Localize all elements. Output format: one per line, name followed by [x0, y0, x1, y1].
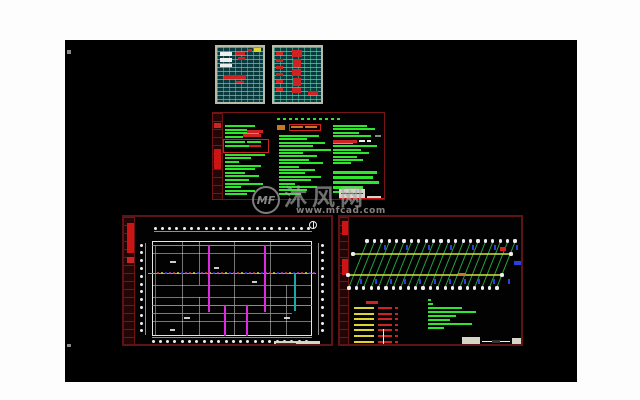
tick — [313, 118, 316, 120]
mark — [199, 241, 200, 285]
text-line — [428, 303, 433, 305]
grid-bubble — [166, 340, 169, 343]
text-line — [225, 125, 255, 127]
mark — [512, 338, 522, 344]
text-line — [428, 327, 444, 329]
panel-schedule-table-right — [272, 45, 323, 104]
mark — [127, 223, 134, 253]
grid-bubble — [205, 227, 208, 230]
grid-bubble — [321, 251, 324, 254]
tick — [283, 118, 286, 120]
legend-text — [395, 324, 398, 326]
branch-line — [364, 242, 382, 287]
legend-text — [395, 335, 398, 337]
grid-bubble — [254, 340, 257, 343]
legend-swatch — [354, 341, 374, 343]
text-line — [279, 155, 317, 157]
tick — [493, 279, 495, 284]
text-line — [279, 152, 303, 154]
mark — [252, 281, 257, 283]
grid-bubble — [321, 298, 324, 301]
mark — [305, 126, 317, 128]
legend-swatch — [354, 318, 374, 320]
grid-bubble — [476, 239, 479, 242]
mark — [220, 58, 232, 62]
text-line — [333, 125, 367, 127]
north-arrow-icon — [313, 222, 314, 229]
grid-bubble — [439, 239, 442, 242]
mark — [234, 241, 235, 336]
tick — [464, 279, 466, 284]
legend-swatch — [354, 329, 374, 331]
grid-bubble — [484, 239, 487, 242]
mark — [247, 141, 261, 143]
mark — [248, 49, 252, 52]
grid-bubble — [384, 286, 387, 289]
mark — [277, 125, 285, 130]
mark — [214, 267, 219, 269]
text-line — [333, 132, 359, 134]
grid-bubble — [161, 227, 164, 230]
mark — [333, 171, 377, 174]
grid-bubble — [300, 227, 303, 230]
grid-bubble — [410, 239, 413, 242]
grid-bubble — [488, 286, 491, 289]
mark — [293, 59, 301, 67]
mark — [238, 57, 245, 60]
grid-bubble — [395, 239, 398, 242]
grid-bubble — [421, 286, 424, 289]
watermark-site-url: www.mfcad.com — [296, 206, 386, 216]
mark — [154, 231, 312, 232]
grid-bubble — [190, 227, 193, 230]
grid-bubble — [425, 239, 428, 242]
mark — [276, 88, 283, 91]
grid-bubble — [321, 306, 324, 309]
grid-bubble — [197, 227, 200, 230]
cad-screenshot-canvas: MF 沐风网 www.mfcad.com — [0, 0, 640, 400]
grid-bubble — [321, 314, 324, 317]
grid-bubble — [321, 283, 324, 286]
legend-text — [378, 318, 392, 320]
text-line — [428, 323, 472, 325]
grid-bubble — [321, 329, 324, 332]
grid-bubble — [168, 227, 171, 230]
grid-bubble — [402, 239, 405, 242]
grid-bubble — [407, 286, 410, 289]
text-line — [225, 154, 265, 156]
text-line — [225, 172, 245, 174]
mark — [199, 297, 200, 336]
grid-bubble — [373, 239, 376, 242]
mark — [208, 245, 210, 312]
grid-bubble — [388, 239, 391, 242]
grid-bubble — [392, 286, 395, 289]
grid-bubble — [432, 239, 435, 242]
grid-bubble — [234, 227, 237, 230]
grid-bubble — [140, 298, 143, 301]
mark — [67, 344, 71, 347]
mark — [276, 73, 283, 76]
grid-bubble — [321, 244, 324, 247]
mark — [246, 305, 248, 336]
text-line — [333, 145, 377, 147]
grid-bubble — [447, 239, 450, 242]
text-line — [428, 319, 450, 321]
mark — [294, 273, 296, 311]
grid-bubble — [458, 286, 461, 289]
mark — [359, 140, 365, 142]
legend-text — [378, 313, 392, 315]
mark — [247, 130, 263, 133]
grid-bubble — [285, 227, 288, 230]
grid-bubble — [140, 314, 143, 317]
node-dot — [500, 273, 503, 276]
branch-line — [438, 242, 456, 287]
text-line — [225, 165, 261, 167]
legend-text — [378, 341, 392, 343]
grid-bubble — [241, 227, 244, 230]
tick — [428, 245, 430, 250]
mark — [292, 88, 301, 93]
branch-line — [349, 242, 367, 287]
text-line — [225, 161, 239, 163]
node-dot — [509, 252, 512, 255]
legend-text — [395, 329, 398, 331]
tick — [307, 118, 310, 120]
grid-bubble — [212, 227, 215, 230]
node-dot — [346, 273, 349, 276]
grid-bubble — [246, 340, 249, 343]
panel-floor-plan — [122, 215, 333, 346]
grid-bubble — [292, 227, 295, 230]
text-line — [279, 169, 315, 171]
mark — [292, 50, 302, 57]
branch-line — [423, 242, 441, 287]
text-line — [279, 159, 309, 161]
grid-bubble — [466, 286, 469, 289]
tick — [472, 245, 474, 250]
grid-bubble — [444, 286, 447, 289]
mark — [170, 261, 176, 263]
grid-bubble — [377, 286, 380, 289]
grid-bubble — [140, 306, 143, 309]
legend-text — [378, 329, 392, 331]
mark — [276, 343, 296, 344]
mark — [152, 245, 312, 246]
grid-bubble — [321, 322, 324, 325]
tick — [406, 245, 408, 250]
text-line — [279, 166, 299, 168]
mark — [152, 337, 312, 338]
grid-bubble — [219, 227, 222, 230]
grid-bubble — [232, 340, 235, 343]
node-dot — [351, 252, 354, 255]
mark — [308, 91, 318, 95]
grid-bubble — [513, 239, 516, 242]
mark — [127, 257, 134, 263]
mark — [152, 321, 312, 322]
mark — [225, 141, 245, 143]
mark — [214, 123, 221, 128]
grid-bubble — [355, 286, 358, 289]
text-line — [333, 149, 361, 151]
mark — [514, 261, 521, 265]
grid-bubble — [210, 340, 213, 343]
mark — [249, 145, 261, 147]
tick — [277, 118, 280, 120]
grid-bubble — [462, 239, 465, 242]
grid-bubble — [256, 227, 259, 230]
panel-riser-diagram — [338, 215, 523, 346]
mark — [428, 299, 431, 301]
grid-bubble — [239, 340, 242, 343]
mark — [145, 243, 146, 335]
text-line — [279, 135, 319, 137]
tick — [508, 279, 510, 284]
grid-bubble — [321, 275, 324, 278]
tick — [331, 118, 334, 120]
tick — [449, 279, 451, 284]
mark — [182, 241, 183, 336]
grid-bubble — [181, 340, 184, 343]
mark — [254, 48, 261, 52]
mark — [276, 66, 283, 69]
mark — [155, 245, 156, 335]
legend-swatch — [354, 335, 374, 337]
mark — [276, 59, 283, 62]
mark — [220, 64, 232, 67]
text-line — [333, 156, 357, 158]
grid-bubble — [140, 244, 143, 247]
text-line — [428, 311, 476, 313]
legend-swatch — [354, 307, 374, 309]
tick — [325, 118, 328, 120]
grid-bubble — [469, 239, 472, 242]
legend-swatch — [354, 324, 374, 326]
tick — [375, 279, 377, 284]
grid-bubble — [183, 227, 186, 230]
grid-bubble — [261, 340, 264, 343]
mark — [264, 245, 266, 312]
text-line — [333, 152, 369, 154]
branch-line — [482, 242, 500, 287]
text-line — [279, 149, 331, 151]
text-line — [225, 168, 255, 170]
grid-bubble — [140, 283, 143, 286]
watermark-mf-logo-icon: MF — [252, 186, 280, 214]
legend-text — [395, 307, 398, 309]
mark — [184, 317, 190, 319]
grid-bubble — [270, 227, 273, 230]
text-line — [279, 172, 305, 174]
grid-bubble — [140, 329, 143, 332]
legend-text — [395, 313, 398, 315]
grid-bubble — [159, 340, 162, 343]
mark — [292, 69, 301, 76]
text-line — [225, 136, 243, 138]
mark — [214, 149, 221, 169]
mark — [458, 273, 466, 276]
grid-bubble — [195, 340, 198, 343]
grid-bubble — [321, 267, 324, 270]
mark — [224, 305, 226, 336]
tick — [289, 118, 292, 120]
legend-text — [395, 341, 398, 343]
mark — [293, 78, 301, 86]
grid-bubble — [217, 340, 220, 343]
mark — [276, 52, 283, 55]
mark — [291, 126, 303, 128]
mark — [152, 285, 312, 286]
legend-text — [395, 318, 398, 320]
grid-bubble — [506, 239, 509, 242]
grid-bubble — [263, 227, 266, 230]
grid-bubble — [499, 239, 502, 242]
mark — [170, 329, 175, 331]
mark — [367, 140, 371, 142]
tick — [295, 118, 298, 120]
grid-bubble — [140, 251, 143, 254]
grid-bubble — [451, 286, 454, 289]
text-line — [225, 186, 241, 188]
text-line — [225, 157, 251, 159]
grid-bubble — [140, 290, 143, 293]
grid-bubble — [414, 286, 417, 289]
tick — [337, 118, 340, 120]
tick — [360, 279, 362, 284]
mark — [270, 241, 271, 336]
grid-bubble — [140, 322, 143, 325]
mark — [224, 75, 246, 79]
grid-bubble — [140, 259, 143, 262]
grid-bubble — [175, 227, 178, 230]
panel-schedule-table-left — [215, 45, 265, 104]
grid-bubble — [203, 340, 206, 343]
grid-bubble — [347, 286, 350, 289]
mark — [318, 243, 319, 335]
tick — [478, 279, 480, 284]
mark — [243, 134, 261, 137]
tick — [404, 279, 406, 284]
grid-bubble — [278, 227, 281, 230]
grid-bubble — [154, 227, 157, 230]
legend-title — [366, 301, 378, 304]
text-line — [279, 145, 313, 147]
grid-bubble — [321, 259, 324, 262]
branch-line — [453, 242, 471, 287]
watermark: MF 沐风网 www.mfcad.com — [240, 178, 385, 220]
tick — [516, 245, 518, 250]
grid-bubble — [152, 340, 155, 343]
branch-line — [467, 242, 485, 287]
mark — [152, 305, 312, 306]
branch-line — [379, 242, 397, 287]
mark — [152, 253, 312, 254]
grid-bubble — [321, 290, 324, 293]
branch-line — [408, 242, 426, 287]
text-line — [333, 135, 371, 137]
mark — [286, 285, 287, 336]
text-line — [279, 138, 307, 140]
grid-bubble — [140, 275, 143, 278]
tick — [494, 245, 496, 250]
mark — [276, 80, 283, 83]
text-line — [333, 128, 375, 130]
grid-bubble — [227, 227, 230, 230]
text-line — [428, 315, 456, 317]
tick — [384, 245, 386, 250]
grid-bubble — [429, 286, 432, 289]
mark — [492, 340, 500, 343]
tick — [390, 279, 392, 284]
legend-text — [378, 307, 392, 309]
mark — [383, 329, 384, 346]
mark — [236, 81, 244, 83]
mark — [236, 52, 245, 55]
tick — [450, 245, 452, 250]
branch-line — [393, 242, 411, 287]
mark — [333, 140, 357, 143]
tick — [419, 279, 421, 284]
mark — [284, 317, 290, 319]
grid-bubble — [188, 340, 191, 343]
text-line — [279, 162, 323, 164]
grid-bubble — [370, 286, 373, 289]
text-line — [279, 142, 325, 144]
grid-bubble — [173, 340, 176, 343]
mark — [152, 297, 312, 298]
grid-bubble — [225, 340, 228, 343]
grid-bubble — [481, 286, 484, 289]
grid-bubble — [140, 267, 143, 270]
text-line — [225, 129, 247, 131]
legend-text — [378, 324, 392, 326]
mark — [152, 313, 292, 314]
mark — [375, 135, 381, 137]
tick — [301, 118, 304, 120]
tick — [319, 118, 322, 120]
mark — [500, 247, 506, 251]
grid-bubble — [495, 286, 498, 289]
grid-bubble — [268, 340, 271, 343]
text-line — [333, 159, 363, 161]
legend-swatch — [354, 313, 374, 315]
title-block — [462, 337, 480, 346]
grid-bubble — [365, 239, 368, 242]
legend-text — [378, 335, 392, 337]
text-line — [333, 162, 351, 164]
mark — [220, 52, 232, 56]
mark — [67, 50, 71, 54]
tick — [434, 279, 436, 284]
text-line — [428, 307, 462, 309]
grid-bubble — [248, 227, 251, 230]
